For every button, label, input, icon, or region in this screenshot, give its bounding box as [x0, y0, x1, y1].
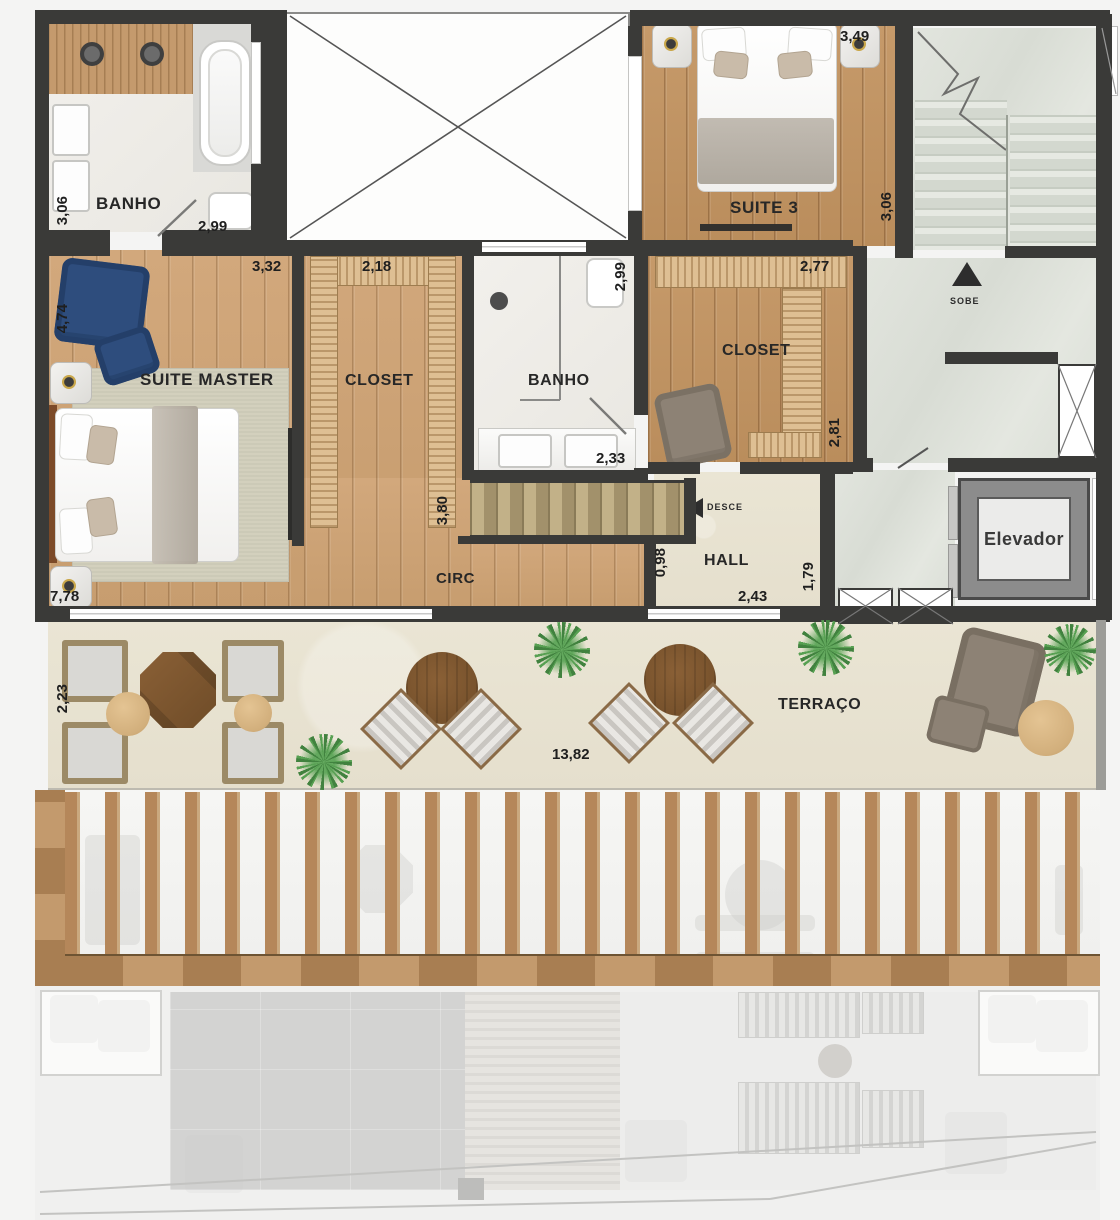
- pillow: [85, 496, 118, 538]
- floor-plan: SOBE DESCE Elevador: [0, 0, 1120, 1220]
- dim: 3,06: [878, 192, 895, 221]
- sink-unit: [498, 434, 552, 468]
- room-label-suite-master: SUITE MASTER: [140, 370, 274, 390]
- wardrobe: [428, 256, 456, 528]
- room-label-banho-master: BANHO: [96, 194, 161, 214]
- dim: 13,82: [552, 746, 590, 763]
- lamp-icon: [663, 36, 679, 52]
- dim: 3,06: [54, 196, 71, 225]
- plant: [98, 1000, 150, 1052]
- pillow: [777, 50, 814, 79]
- dim: 2,18: [362, 258, 391, 275]
- plant: [988, 995, 1036, 1043]
- dim: 2,33: [596, 450, 625, 467]
- terrace-armchair: [62, 640, 128, 702]
- plant: [1036, 1000, 1088, 1052]
- plant: [945, 1112, 1007, 1174]
- dim: 2,99: [612, 262, 629, 291]
- wall: [945, 352, 1058, 364]
- wall: [648, 462, 700, 474]
- dim: 2,43: [738, 588, 767, 605]
- room-label-closet-suite3: CLOSET: [722, 342, 791, 360]
- stairs-down: [470, 480, 684, 538]
- elevator-door: [948, 486, 958, 540]
- dim: 4,74: [54, 304, 71, 333]
- pillow: [85, 424, 118, 466]
- washbasin: [140, 42, 164, 66]
- lower-table: [818, 1044, 852, 1078]
- suite3-blanket: [698, 118, 834, 184]
- wall: [261, 10, 287, 246]
- glass-partition: [251, 42, 261, 164]
- room-label-hall: HALL: [704, 552, 749, 570]
- suite3-console: [700, 224, 792, 231]
- wall: [853, 458, 873, 472]
- wall: [853, 246, 867, 462]
- shower-head: [490, 292, 508, 310]
- wall: [684, 478, 696, 544]
- terrace-door-glass: [648, 609, 780, 619]
- dim: 3,32: [252, 258, 281, 275]
- wall: [162, 244, 305, 256]
- elevator-label: Elevador: [984, 529, 1064, 550]
- pergola-rail: [65, 954, 1100, 986]
- void-shaft: [285, 12, 630, 242]
- wall: [251, 164, 261, 230]
- wardrobe: [782, 288, 822, 446]
- terrace-edge: [1096, 620, 1106, 790]
- wall: [948, 458, 1096, 472]
- lower-deck: [465, 992, 620, 1190]
- dim: 2,99: [198, 218, 227, 235]
- room-label-circ: CIRC: [436, 570, 475, 587]
- room-label-terraco: TERRAÇO: [778, 696, 861, 714]
- wall: [740, 462, 853, 474]
- plant: [625, 1120, 687, 1182]
- room-label-banho-suite: BANHO: [528, 372, 590, 390]
- plant: [798, 620, 854, 676]
- plant: [534, 622, 590, 678]
- side-table: [1018, 700, 1074, 756]
- dim: 1,79: [800, 562, 817, 591]
- wall: [630, 10, 1110, 26]
- window: [482, 242, 586, 252]
- plant: [50, 995, 98, 1043]
- wall: [642, 240, 853, 256]
- pergola-post: [35, 790, 65, 986]
- wall: [634, 250, 648, 415]
- wall: [628, 26, 642, 56]
- terrace-armchair: [222, 640, 284, 702]
- lower-lounger: [862, 1090, 924, 1148]
- dim: 2,23: [54, 684, 71, 713]
- terrace-door-glass: [70, 609, 432, 619]
- wall: [895, 14, 913, 258]
- plant: [185, 1135, 243, 1193]
- sobe-label: SOBE: [950, 296, 980, 306]
- pillow: [713, 50, 750, 79]
- wall: [35, 10, 49, 620]
- wall: [462, 250, 474, 480]
- wardrobe: [310, 256, 338, 528]
- stair-flight-right: [1010, 115, 1096, 246]
- dim: 7,78: [50, 588, 79, 605]
- room-label-suite3: SUITE 3: [730, 198, 798, 218]
- lower-lounger: [862, 992, 924, 1034]
- side-table: [106, 692, 150, 736]
- wall: [251, 10, 261, 42]
- dim: 0,98: [652, 548, 669, 577]
- side-table: [234, 694, 272, 732]
- pergola-slats: [65, 792, 1100, 954]
- elevator: Elevador: [958, 478, 1090, 600]
- wall: [458, 536, 686, 544]
- dim: 3,80: [434, 496, 451, 525]
- wall: [820, 462, 835, 620]
- wall: [292, 250, 304, 546]
- banho-master-wood-counter: [48, 22, 193, 94]
- lower-lounger: [738, 1082, 860, 1154]
- wardrobe: [748, 432, 822, 458]
- wall: [35, 244, 110, 256]
- bathtub: [199, 40, 251, 166]
- dim: 2,81: [826, 418, 843, 447]
- washbasin: [80, 42, 104, 66]
- dim: 3,49: [840, 28, 869, 45]
- sobe-arrow-icon: [952, 262, 982, 286]
- octagon-table: [140, 652, 216, 728]
- door-opening: [628, 56, 642, 211]
- stair-flight-left: [915, 100, 1007, 250]
- lower-lounger: [738, 992, 860, 1038]
- plant: [296, 734, 352, 790]
- wall: [1096, 14, 1112, 620]
- plant: [1044, 624, 1096, 676]
- master-throw: [152, 406, 198, 564]
- duct-shaft: [1058, 364, 1096, 458]
- dim: 2,77: [800, 258, 829, 275]
- desce-label: DESCE: [707, 502, 743, 512]
- lower-step: [458, 1178, 484, 1200]
- room-label-closet-master: CLOSET: [345, 372, 414, 390]
- wall: [1005, 246, 1096, 258]
- sink-unit: [52, 104, 90, 156]
- lamp-icon: [61, 374, 77, 390]
- wall: [35, 10, 285, 24]
- wall: [462, 470, 642, 480]
